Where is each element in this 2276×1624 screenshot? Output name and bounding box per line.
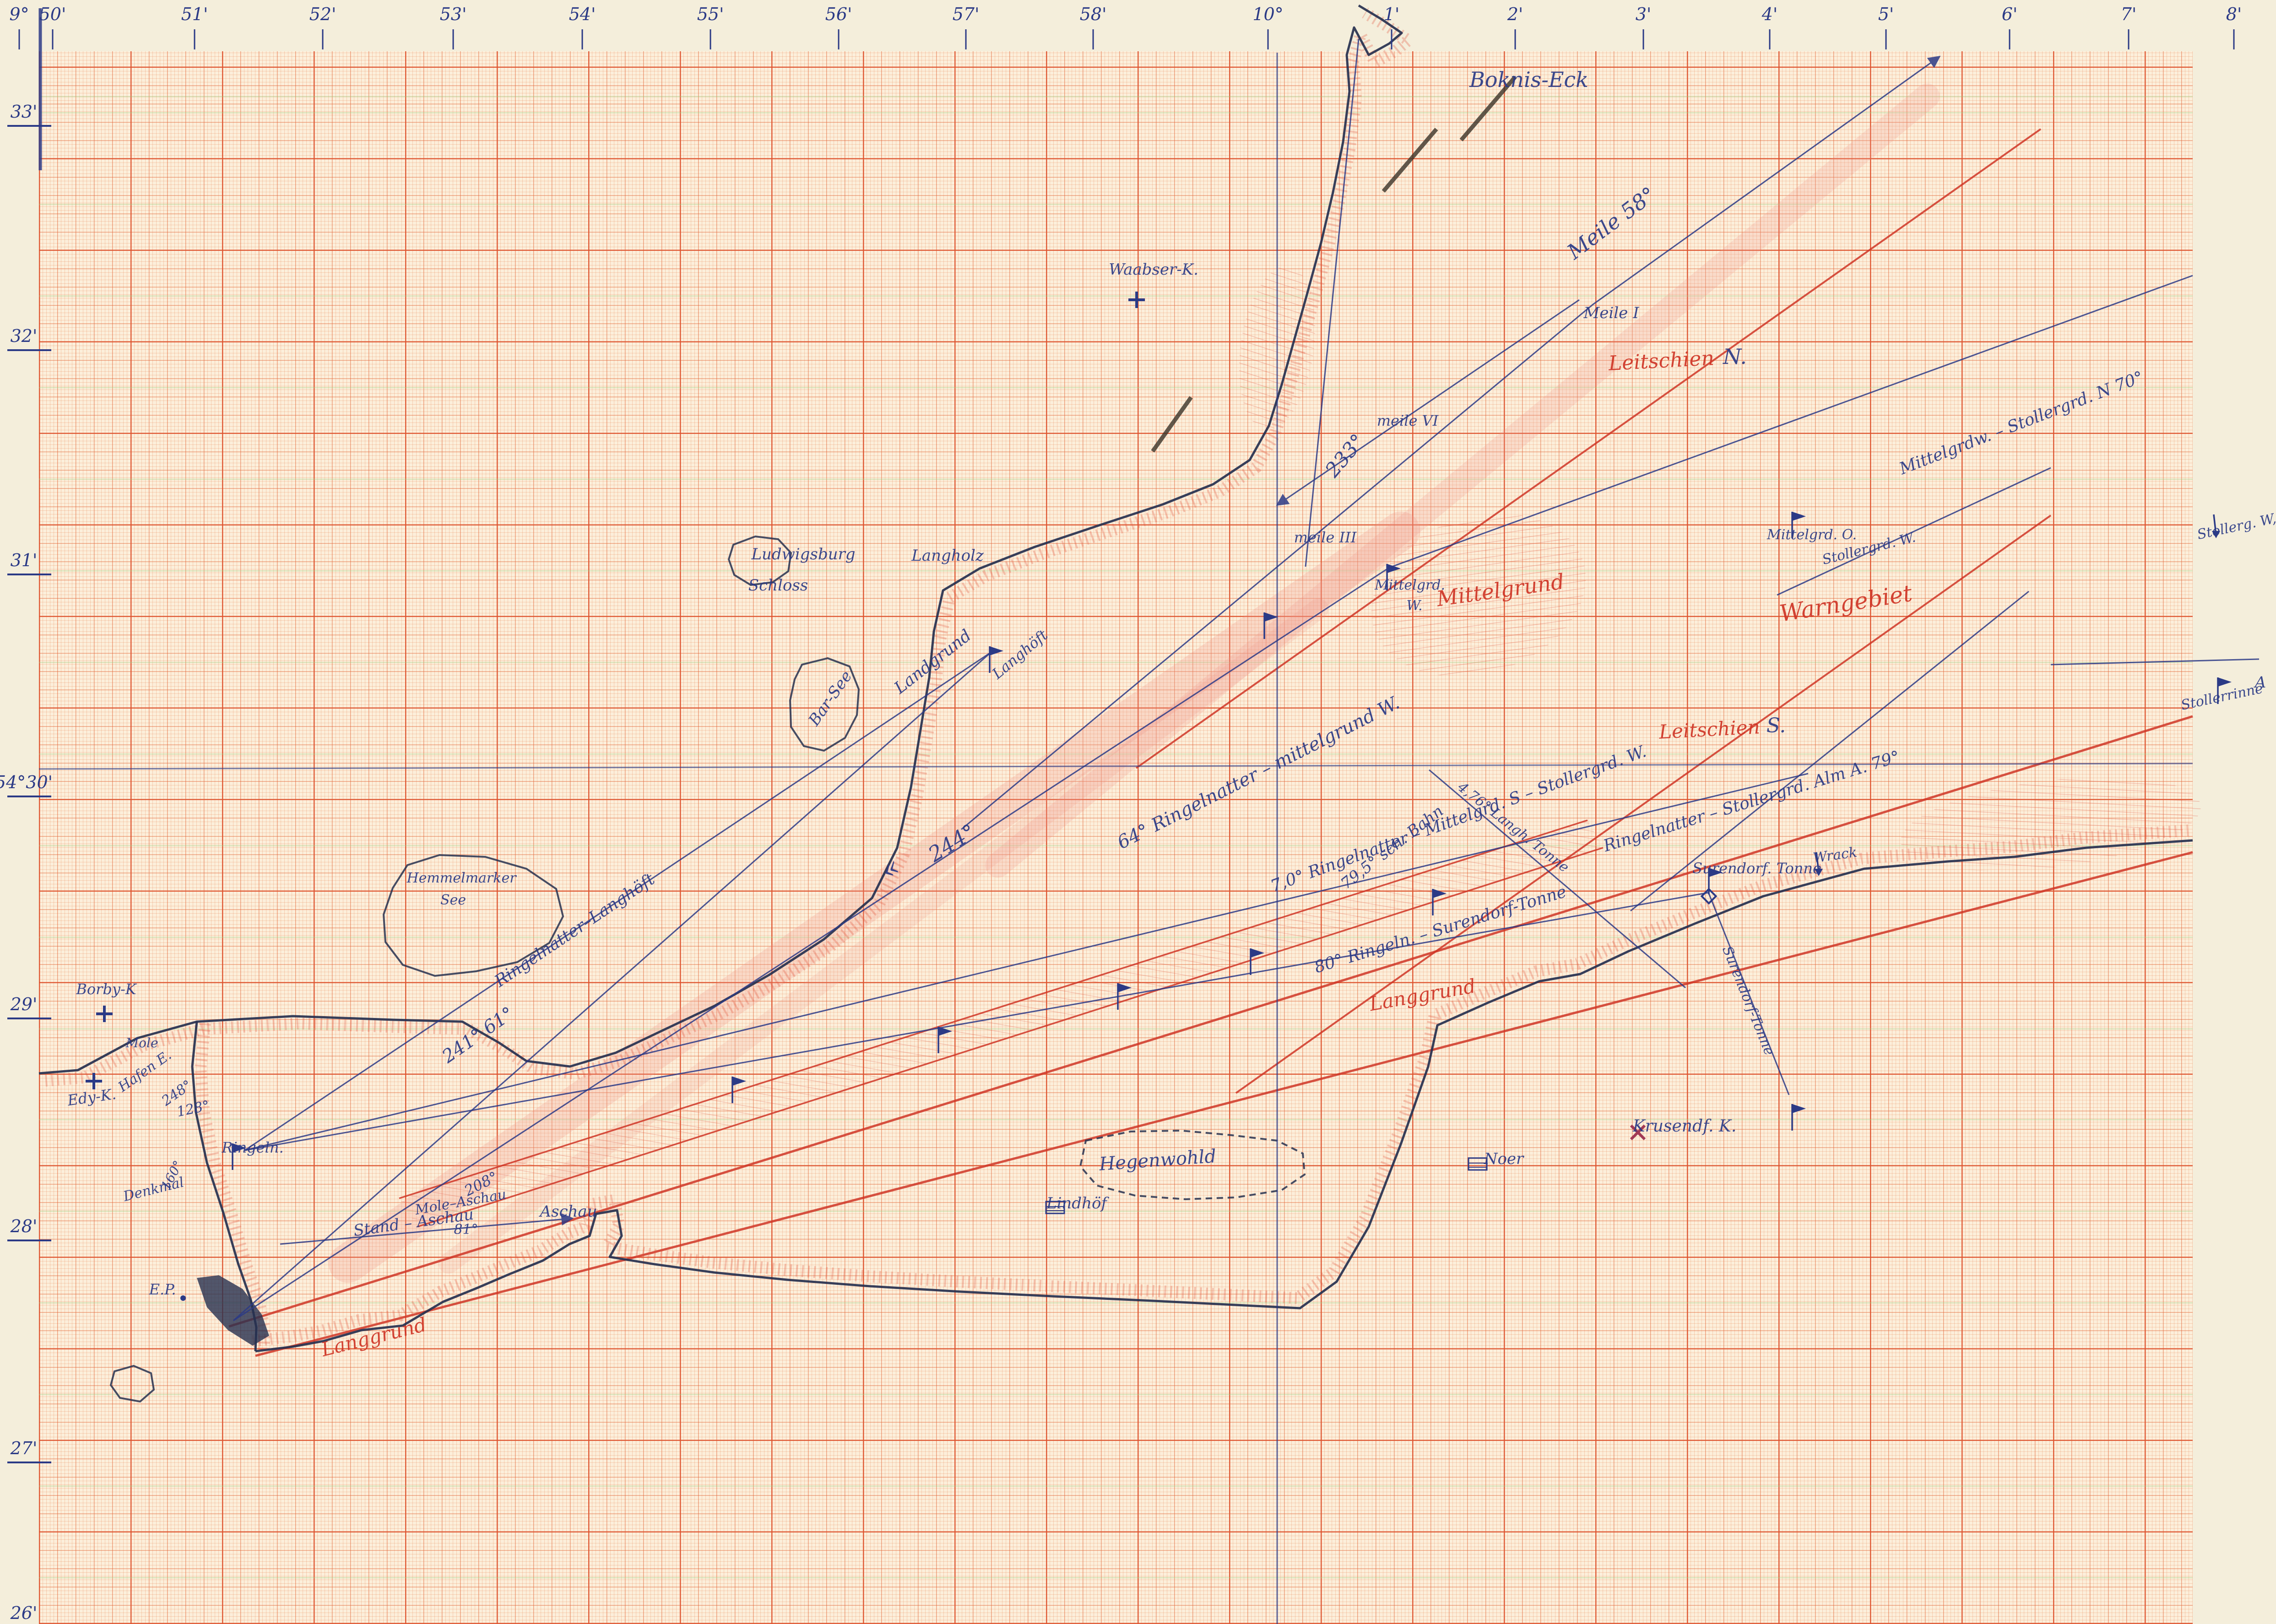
axis-top-label: 9° [9, 4, 29, 24]
map-label: N. [1723, 344, 1747, 369]
graticule-labels: 9°50'51'52'53'54'55'56'57'58'10°1'2'3'4'… [0, 4, 2242, 1624]
map-label: Stollerrinne [2179, 681, 2265, 714]
cross-symbol [96, 1006, 113, 1022]
map-label: Mittelgrd. [1374, 577, 1445, 593]
coastline-north-shore [39, 5, 1402, 1073]
map-label: W. [1406, 598, 1422, 614]
map-label: Meile I [1583, 304, 1639, 322]
map-label: A [2254, 673, 2266, 692]
flag-symbol [1792, 1104, 1806, 1131]
axis-left-label: 54°30' [0, 772, 53, 792]
map-label: Surendorf. Tonne [1692, 860, 1821, 877]
mile-bar [1153, 397, 1191, 451]
flag-pennant [990, 646, 1003, 655]
corridor-hatch [399, 820, 1603, 1227]
red-bearing-line [1236, 515, 2051, 1093]
map-label: See [440, 892, 466, 908]
map-label: Ringelnatter–Langhöft [491, 870, 658, 991]
map-label: Bar-See [805, 667, 856, 730]
flag-pennant [1792, 1104, 1806, 1113]
harbor-pier [197, 1275, 269, 1346]
map-label: Ringeln. [221, 1139, 283, 1156]
flag-pennant [1792, 512, 1806, 521]
point-dot [180, 1295, 186, 1301]
map-label: Warngebiet [1777, 580, 1914, 627]
axis-left-label: 26' [10, 1603, 38, 1623]
map-label: Boknis-Eck [1469, 67, 1588, 92]
map-label: 128° [175, 1098, 211, 1120]
axis-top-label: 6' [2002, 4, 2018, 24]
shoal-area [1896, 762, 2206, 885]
coast-hachures [45, 13, 2190, 1353]
map-label: 233° [1321, 430, 1370, 482]
run-band [348, 531, 1401, 1263]
map-label: Ludwigsburg [751, 545, 855, 563]
map-label: Krusendf. K. [1632, 1117, 1737, 1136]
map-label: Langgrund [1367, 974, 1478, 1015]
islet [111, 1366, 154, 1402]
mile-cross-bars [1153, 77, 1515, 451]
bearing-line [233, 652, 991, 1321]
scanned-map-page: Boknis-EckWaabser-K.Meile 58°Meile I233°… [0, 0, 2276, 1624]
bearing-line [1306, 39, 1359, 567]
map-label: Langholz [911, 547, 984, 565]
map-label: Lindhöf [1046, 1194, 1109, 1213]
map-label: Stollerg. W, [2196, 510, 2276, 543]
map-label: Schloss [748, 576, 808, 595]
map-label: Hegenwohld [1098, 1146, 1217, 1175]
map-label: Mittelgrd. O. [1767, 527, 1857, 543]
map-label: Surendorf-Tonne [1719, 944, 1777, 1058]
red-bearing-line [417, 848, 1603, 1227]
bearing-line [245, 893, 1709, 1150]
axis-left-label: 27' [10, 1438, 38, 1458]
map-label: 81° [454, 1222, 478, 1238]
map-label: Hemmelmarker [406, 870, 517, 886]
bearing-line [1278, 300, 1579, 504]
map-label: meile VI [1377, 412, 1439, 429]
axis-left-label: 31' [11, 550, 38, 570]
axis-left-label: 32' [11, 326, 38, 346]
axis-top-label: 2' [1507, 4, 1523, 24]
map-label: Borby-K [76, 980, 137, 998]
map-label: S. [1767, 714, 1786, 737]
coastlines [39, 5, 2193, 1351]
map-label: Waabser-K. [1109, 260, 1198, 279]
map-label: Langgrund [319, 1313, 429, 1361]
bearing-line [2051, 659, 2259, 665]
axis-top-label: 54' [569, 4, 596, 24]
axis-top-label: 10° [1252, 4, 1283, 24]
axis-top-label: 5' [1878, 4, 1894, 24]
axis-top-label: 3' [1636, 4, 1652, 24]
map-label: Mole [125, 1035, 158, 1050]
map-label: Meile 58° [1562, 182, 1661, 264]
map-label: Noer [1484, 1150, 1524, 1168]
shore-hachure [45, 13, 1408, 1081]
axis-top-label: 56' [825, 4, 852, 24]
axis-top-label: 4' [1761, 4, 1778, 24]
axis-top-label: 8' [2226, 4, 2242, 24]
axis-top-label: 58' [1080, 4, 1107, 24]
shore-hachure [253, 830, 2190, 1341]
axis-left-label: 29' [10, 994, 38, 1014]
axis-left-label: 28' [10, 1216, 38, 1236]
map-label: Edy-K. [66, 1085, 117, 1110]
axis-top-label: 55' [697, 4, 724, 24]
coastline-south-shore [255, 840, 2193, 1351]
axis-top-label: 50' [39, 4, 66, 24]
shoal-hatching [1230, 261, 2206, 886]
map-label: Leitschien [1658, 715, 1761, 743]
map-label: Langhöft [988, 626, 1051, 683]
axis-top-label: 51' [181, 4, 208, 24]
flag-pennant [732, 1077, 746, 1086]
axis-top-label: 53' [440, 4, 467, 24]
cross-symbol [1128, 292, 1145, 308]
map-label: Mittelgrdw. – Stollergrd. N 70° [1897, 368, 2146, 478]
map-label: Aschau [538, 1202, 597, 1221]
eckernfoerde-bay-survey-map: Boknis-EckWaabser-K.Meile 58°Meile I233°… [0, 0, 2276, 1624]
dot-symbol [180, 1295, 186, 1301]
map-label: E.P. [149, 1281, 176, 1298]
axis-top-label: 1' [1384, 4, 1400, 24]
bearing-line [1389, 276, 2193, 568]
axis-top-label: 52' [309, 4, 336, 24]
map-label: 241° 61° [438, 1003, 518, 1067]
axis-top-label: 57' [953, 4, 980, 24]
mile-bar [1383, 129, 1436, 191]
measured-mile-corridor [399, 820, 1603, 1227]
flag-pennant [2218, 677, 2232, 687]
axis-left-label: 33' [11, 102, 38, 122]
axis-top-label: 7' [2121, 4, 2137, 24]
map-label: meile III [1294, 529, 1357, 546]
red-bearing-line [399, 820, 1588, 1198]
